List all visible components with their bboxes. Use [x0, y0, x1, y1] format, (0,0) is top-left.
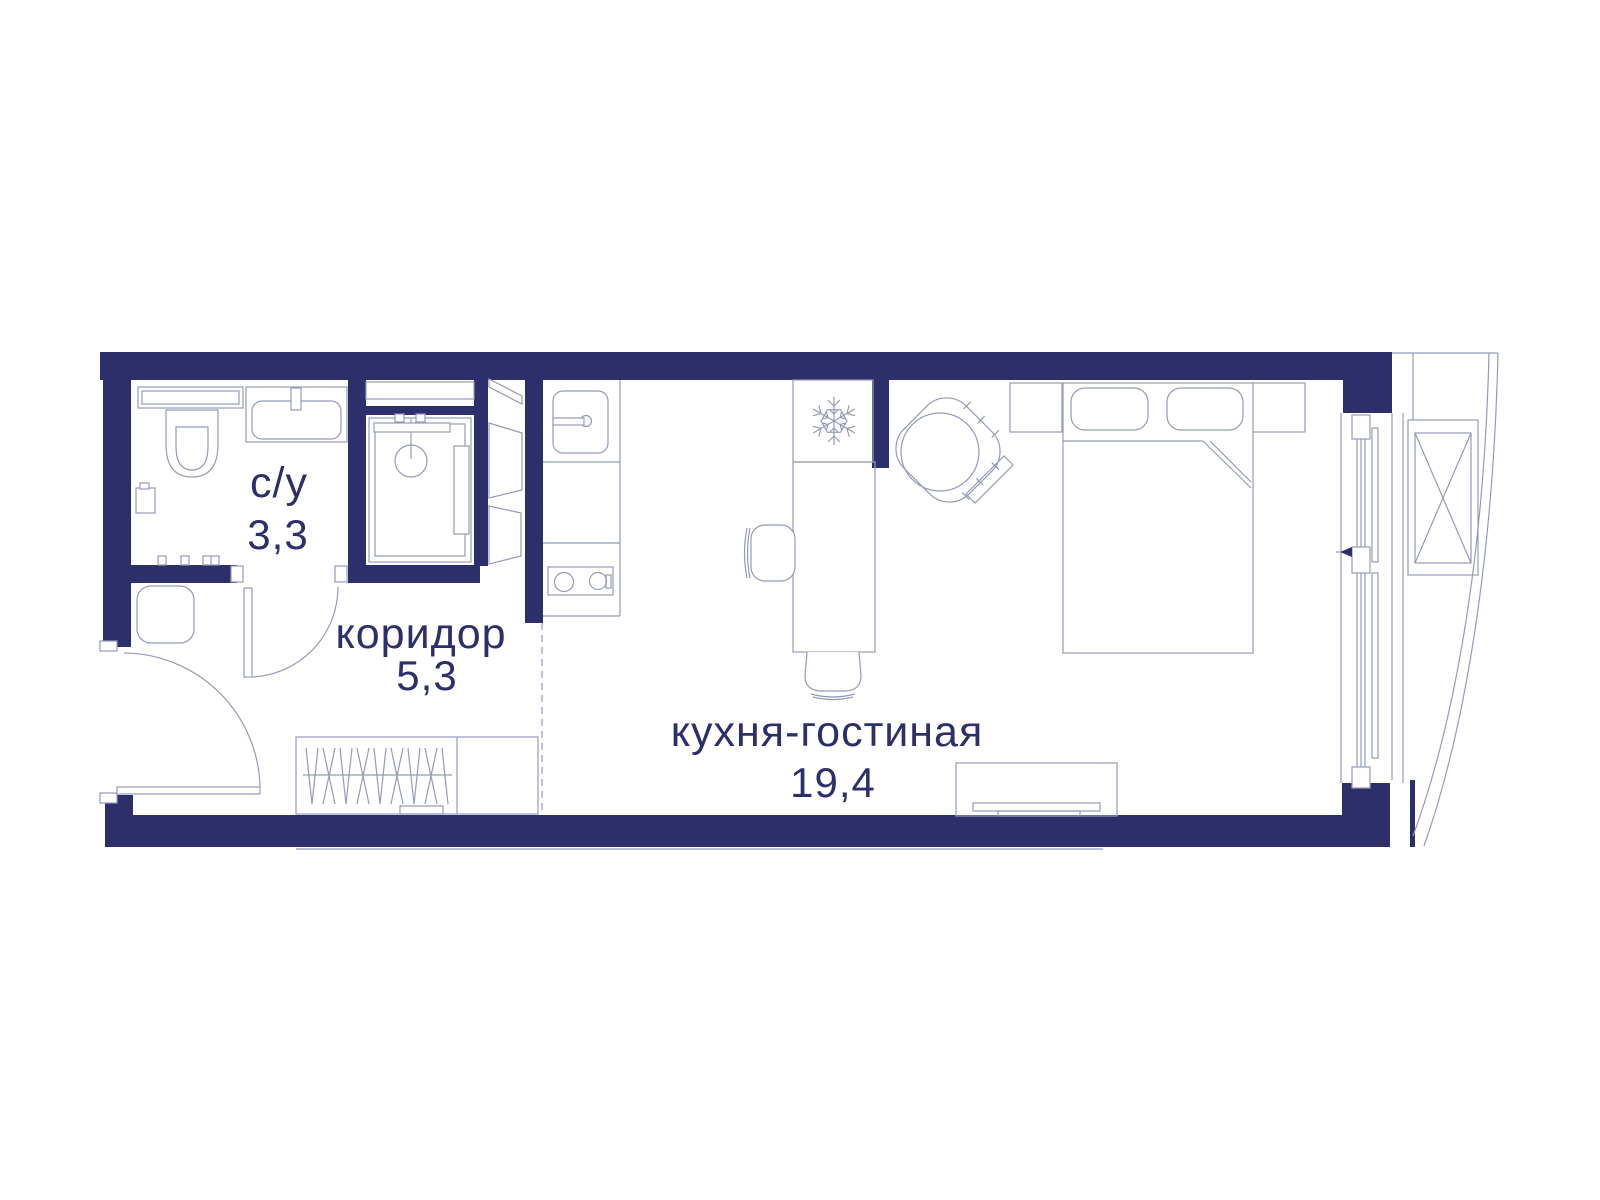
toilet-bowl — [166, 410, 218, 477]
armchair — [884, 382, 1018, 516]
chair-seat — [805, 652, 861, 691]
ac-basket — [1408, 420, 1478, 575]
fridge — [793, 380, 873, 462]
towel-dryer-body — [136, 488, 155, 513]
tv-stand — [956, 763, 1117, 816]
wall-shower-bottom — [348, 565, 480, 583]
bedside-table-left — [1010, 383, 1062, 432]
counter-inner — [142, 391, 239, 404]
counter-outline — [138, 387, 243, 408]
wardrobe-drawer — [400, 806, 443, 814]
tv-console — [956, 763, 1117, 816]
kitchen-living-label: кухня-гостиная — [671, 708, 983, 756]
sink-faucet — [553, 418, 584, 425]
shower-tick — [395, 414, 404, 422]
stove — [548, 567, 613, 595]
corridor-area: 5,3 — [396, 652, 457, 699]
wall-niche-right — [525, 378, 543, 623]
armchair-outline — [884, 386, 1011, 513]
burner — [555, 573, 574, 592]
corridor-cabinet — [137, 586, 194, 643]
plumbing-ticks — [158, 556, 219, 565]
window-frame-box — [1352, 547, 1370, 573]
niche-shelf-panel — [489, 506, 521, 564]
towel-dryer-valve — [140, 483, 149, 489]
kitchen-island — [793, 462, 875, 652]
kitchen-living-area: 19,4 — [790, 759, 876, 806]
island-table — [793, 462, 875, 652]
facade-zone — [1392, 353, 1498, 846]
window-frame-box — [1352, 415, 1370, 439]
floor-plan: с/у 3,3 коридор 5,3 кухня-гостиная 19,4 — [0, 0, 1600, 1200]
burner — [590, 573, 607, 590]
facade-curve — [1424, 353, 1498, 846]
shower-tray-inner — [375, 424, 465, 556]
bathroom-vanity — [246, 387, 347, 442]
shower-tick — [416, 414, 425, 422]
toilet-seat — [176, 427, 208, 470]
entrance-door — [117, 653, 260, 794]
wall-fridge-stub — [872, 376, 889, 468]
wall-top — [100, 352, 1392, 380]
corridor-label: коридор — [335, 610, 506, 658]
bathroom-door — [244, 587, 338, 677]
tv-screen — [973, 803, 1100, 811]
floor-plan-page: с/у 3,3 коридор 5,3 кухня-гостиная 19,4 — [0, 0, 1600, 1200]
pipe-symbol — [158, 556, 166, 565]
kitchen-sink — [553, 391, 608, 453]
shower-shelf — [366, 382, 474, 399]
bed-outline — [1063, 383, 1253, 653]
shower-bench — [454, 446, 469, 534]
entrance-door-leaf — [117, 787, 260, 794]
bathroom-area: 3,3 — [247, 511, 308, 558]
bedside-table-right — [1252, 383, 1305, 432]
stove-outline — [548, 567, 613, 595]
wall-window-edge — [1410, 780, 1415, 847]
bathroom-counter — [138, 387, 243, 408]
window-pane — [1372, 428, 1378, 562]
entry-frame-top — [100, 641, 117, 651]
towel-dryer — [136, 483, 155, 513]
snowflake-icon — [810, 397, 858, 445]
chair-back — [748, 528, 751, 578]
niche-shelf-panel — [489, 379, 522, 404]
bar-chair-bottom — [805, 652, 861, 700]
window-pane — [1372, 573, 1378, 758]
bathroom-door-leaf — [244, 588, 252, 677]
bathroom-label: с/у — [250, 459, 308, 507]
bath-frame-left — [231, 566, 243, 582]
wall-left — [103, 352, 131, 647]
window-frame-box — [1352, 767, 1370, 788]
chair-back — [745, 528, 748, 578]
storage-niche — [489, 379, 522, 564]
bar-chair-left — [745, 525, 796, 581]
wardrobe — [296, 737, 538, 814]
wall-bottom-right-corner — [1342, 783, 1390, 847]
entry-frame-bottom — [100, 793, 117, 803]
hangers-icon — [306, 748, 448, 804]
chair-back — [811, 694, 855, 697]
vanity-faucet — [291, 388, 301, 410]
bathroom-door-swing — [252, 587, 338, 677]
niche-shelf-panel — [489, 423, 522, 498]
pipe-symbol — [181, 556, 189, 565]
wall-bottom — [130, 815, 1342, 847]
chair-seat — [751, 525, 795, 581]
entrance-door-swing — [124, 653, 260, 787]
bath-frame-right — [335, 566, 347, 582]
window-handle-icon — [1340, 547, 1352, 557]
bed — [1010, 383, 1305, 653]
wall-bathroom-bottom — [125, 565, 237, 583]
wall-top-right-step — [1343, 380, 1392, 413]
shower-bar — [374, 423, 450, 432]
toilet — [166, 410, 218, 477]
window-balcony-door — [1336, 413, 1392, 788]
